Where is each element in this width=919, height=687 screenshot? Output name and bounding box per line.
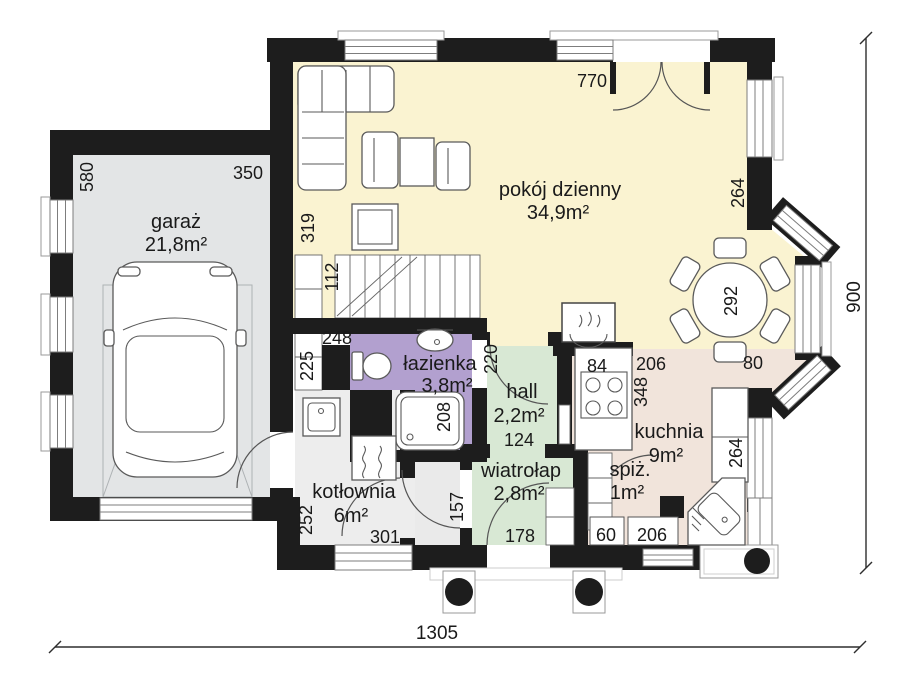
dim-boiler-door: 157 [447, 492, 467, 522]
room-area-bathroom: 3,8m² [421, 375, 472, 397]
dim-boiler-width: 301 [370, 527, 400, 547]
washbasin-icon [417, 329, 453, 351]
floor-plan-page: 580 350 garaż 21,8m² 770 pokój dzienny 3… [0, 0, 919, 687]
dim-shower: 208 [434, 402, 454, 432]
dim-garage-width: 350 [233, 163, 263, 183]
porch-column [575, 578, 603, 606]
window-boiler [335, 545, 412, 570]
window-kitchen-right [747, 418, 772, 545]
room-label-kitchen: kuchnia [635, 421, 705, 443]
room-area-garage: 21,8m² [145, 234, 208, 256]
garage-gate [100, 498, 252, 520]
dim-hall-width: 124 [504, 430, 534, 450]
dim-stove: 84 [587, 356, 607, 376]
terrace-door-opening [613, 40, 710, 62]
window-garage-1 [50, 200, 73, 253]
dim-entrance-door: 178 [505, 526, 535, 546]
armchair-icon [362, 132, 398, 188]
room-area-vestibule: 2,8m² [493, 483, 544, 505]
car-icon [104, 262, 246, 477]
window-garage-3 [50, 395, 73, 448]
dim-living-wall-left: 319 [298, 213, 318, 243]
utility-sink-icon [303, 398, 340, 436]
room-label-living: pokój dzienny [499, 179, 621, 201]
boiler-door-opening [400, 478, 415, 538]
dim-living-width: 770 [577, 71, 607, 91]
dim-dining-table: 292 [721, 286, 741, 316]
dim-hall-door: 220 [481, 344, 501, 374]
dim-kitchen-depth: 348 [631, 377, 651, 407]
window-sill [822, 262, 831, 356]
dim-kitchen-window-top: 206 [636, 354, 666, 374]
porch-column [445, 578, 473, 606]
window-kitchen-bottom [643, 549, 693, 566]
window-sill [550, 31, 718, 40]
dim-bathroom-width: 248 [322, 328, 352, 348]
hall-door-opening [490, 332, 548, 346]
dim-bay-wall-upper: 264 [728, 178, 748, 208]
pouf-icon [352, 204, 398, 250]
room-label-bathroom: łazienka [403, 353, 477, 375]
room-label-hall: hall [506, 381, 537, 403]
room-label-boiler: kotłownia [312, 481, 396, 503]
dim-boiler-depth: 252 [296, 505, 316, 535]
window-sill [338, 31, 444, 40]
dim-total-depth: 900 [844, 281, 865, 313]
fireplace-icon [562, 303, 615, 347]
toilet-icon [352, 352, 391, 380]
room-label-vestibule: wiatrołap [480, 460, 561, 482]
hall-cabinet [559, 405, 570, 444]
room-area-boiler: 6m² [334, 505, 369, 527]
dim-kitchen-wall-right: 264 [726, 438, 746, 468]
room-label-garage: garaż [151, 211, 201, 233]
dim-stairs: 112 [322, 263, 342, 292]
garage-door-opening [270, 432, 293, 488]
terrace-column [744, 548, 770, 574]
dim-kitchen-window-bottom: 206 [637, 525, 667, 545]
dim-stair-closet: 225 [297, 351, 317, 381]
window-sill [774, 77, 783, 160]
room-label-pantry: spiż. [609, 459, 650, 481]
terrace [700, 545, 778, 578]
floor-plan: 580 350 garaż 21,8m² 770 pokój dzienny 3… [0, 0, 919, 687]
window-garage-2 [50, 297, 73, 352]
window-sill [41, 294, 50, 355]
window-sill [41, 392, 50, 451]
window-top-right [557, 40, 613, 60]
dim-total-width: 1305 [416, 623, 458, 644]
room-area-pantry: 1m² [610, 482, 645, 504]
stairs [335, 255, 480, 318]
room-area-living: 34,9m² [527, 202, 590, 224]
armchair-icon [436, 142, 470, 190]
dim-dining-window: 80 [743, 353, 763, 373]
room-area-hall: 2,2m² [493, 405, 544, 427]
window-right-upper [747, 80, 772, 157]
vestibule-closet [546, 488, 574, 545]
dim-pantry-cabinet: 60 [596, 525, 616, 545]
dim-garage-depth: 580 [77, 162, 97, 192]
coffee-table-icon [400, 138, 434, 186]
boiler-icon [352, 436, 396, 480]
room-area-kitchen: 9m² [649, 445, 684, 467]
window-bay-right [795, 265, 820, 353]
window-sill [41, 197, 50, 256]
window-top-left [345, 40, 437, 60]
entrance-door-opening [487, 545, 550, 570]
